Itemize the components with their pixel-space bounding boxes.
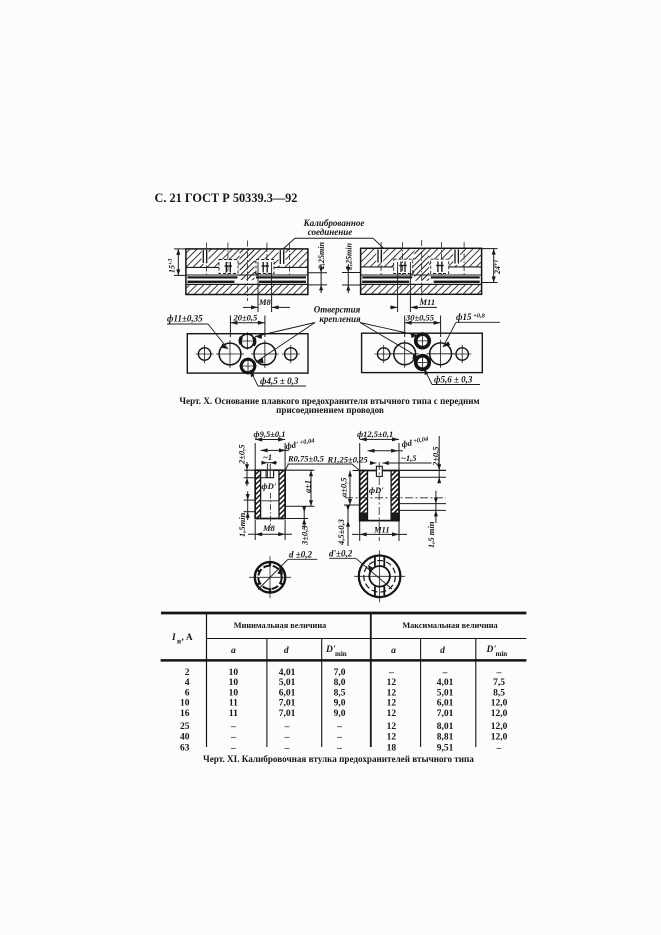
svg-text:10: 10 bbox=[180, 699, 190, 709]
svg-text:1,5min: 1,5min bbox=[237, 512, 247, 537]
svg-text:–: – bbox=[496, 668, 502, 678]
svg-text:12,0: 12,0 bbox=[491, 699, 508, 709]
svg-text:ф4,5 ± 0,3: ф4,5 ± 0,3 bbox=[260, 376, 299, 386]
svg-text:10: 10 bbox=[229, 688, 239, 698]
svg-text:фd +0,04: фd +0,04 bbox=[401, 435, 430, 449]
svg-text:6,01: 6,01 bbox=[437, 699, 454, 709]
svg-text:40: 40 bbox=[180, 733, 190, 743]
svg-text:5,01: 5,01 bbox=[437, 688, 454, 698]
svg-text:М8: М8 bbox=[262, 523, 276, 533]
svg-text:12: 12 bbox=[387, 722, 397, 732]
svg-text:Минимальная величина: Минимальная величина bbox=[234, 621, 327, 630]
svg-text:20±0,5: 20±0,5 bbox=[233, 313, 259, 323]
svg-text:8,01: 8,01 bbox=[437, 722, 454, 732]
svg-text:11: 11 bbox=[229, 699, 238, 709]
svg-text:ф11±0,35: ф11±0,35 bbox=[167, 314, 203, 324]
svg-text:15+3: 15+3 bbox=[168, 259, 177, 273]
svg-text:–: – bbox=[336, 744, 342, 754]
svg-text:2,25min: 2,25min bbox=[345, 243, 354, 271]
svg-text:8,5: 8,5 bbox=[334, 688, 346, 698]
svg-text:М8: М8 bbox=[258, 297, 272, 307]
svg-text:24+1: 24+1 bbox=[493, 260, 502, 275]
svg-text:min: min bbox=[496, 650, 508, 658]
svg-text:–: – bbox=[230, 722, 236, 732]
svg-text:н: н bbox=[177, 638, 181, 646]
svg-text:d ±0,2: d ±0,2 bbox=[289, 550, 312, 560]
svg-text:9,51: 9,51 bbox=[437, 744, 454, 754]
svg-text:12: 12 bbox=[387, 678, 397, 688]
svg-text:63: 63 bbox=[180, 744, 190, 754]
svg-text:соединение: соединение bbox=[308, 227, 353, 237]
svg-text:16: 16 bbox=[180, 709, 190, 719]
svg-text:a: a bbox=[231, 646, 236, 656]
svg-text:I: I bbox=[171, 633, 176, 643]
svg-text:–: – bbox=[496, 744, 502, 754]
svg-text:–: – bbox=[284, 733, 290, 743]
svg-text:ф15 +0,8: ф15 +0,8 bbox=[456, 312, 486, 322]
svg-text:–: – bbox=[388, 668, 394, 678]
svg-text:4,01: 4,01 bbox=[279, 668, 296, 678]
svg-text:ф5,6 ± 0,3: ф5,6 ± 0,3 bbox=[434, 375, 473, 385]
svg-text:–: – bbox=[336, 722, 342, 732]
svg-text:–: – bbox=[336, 733, 342, 743]
svg-text:d: d bbox=[284, 646, 289, 656]
svg-text:7,01: 7,01 bbox=[279, 709, 296, 719]
svg-text:12: 12 bbox=[387, 733, 397, 743]
svg-text:1,5 min: 1,5 min bbox=[426, 521, 436, 548]
svg-text:–: – bbox=[230, 744, 236, 754]
svg-text:12,0: 12,0 bbox=[491, 722, 508, 732]
svg-text:25: 25 bbox=[180, 722, 190, 732]
svg-text:2,25min: 2,25min bbox=[317, 242, 326, 270]
svg-text:–: – bbox=[284, 744, 290, 754]
svg-text:12: 12 bbox=[387, 709, 397, 719]
svg-text:Максимальная величина: Максимальная величина bbox=[402, 621, 498, 630]
svg-text:7,0: 7,0 bbox=[334, 668, 346, 678]
svg-text:7,5: 7,5 bbox=[493, 678, 505, 688]
svg-text:фD': фD' bbox=[369, 485, 384, 495]
svg-text:12: 12 bbox=[387, 688, 397, 698]
svg-text:фD': фD' bbox=[262, 481, 277, 491]
svg-text:~1,5: ~1,5 bbox=[401, 453, 417, 463]
svg-text:R1,25±0,25: R1,25±0,25 bbox=[327, 455, 369, 465]
svg-text:d: d bbox=[440, 646, 445, 656]
svg-text:7,01: 7,01 bbox=[437, 709, 454, 719]
svg-text:12,0: 12,0 bbox=[491, 709, 508, 719]
svg-text:11: 11 bbox=[229, 709, 238, 719]
svg-text:крепления: крепления bbox=[319, 314, 361, 324]
svg-text:a±0,5: a±0,5 bbox=[339, 477, 349, 497]
svg-text:фd' +0,04: фd' +0,04 bbox=[285, 437, 316, 451]
svg-text:Черт. XI. Калибровочная втулк: Черт. XI. Калибровочная втулка предохран… bbox=[203, 754, 474, 764]
svg-text:a: a bbox=[391, 646, 396, 656]
svg-text:12,0: 12,0 bbox=[491, 733, 508, 743]
svg-text:6,01: 6,01 bbox=[279, 688, 296, 698]
svg-text:2: 2 bbox=[185, 668, 190, 678]
svg-text:–: – bbox=[442, 668, 448, 678]
svg-text:–: – bbox=[284, 722, 290, 732]
svg-text:4,01: 4,01 bbox=[437, 678, 454, 688]
svg-text:18: 18 bbox=[387, 744, 397, 754]
svg-text:4,5±0,3: 4,5±0,3 bbox=[336, 518, 346, 546]
svg-text:10: 10 bbox=[229, 678, 239, 688]
svg-text:d'±0,2: d'±0,2 bbox=[329, 549, 353, 559]
svg-text:8,0: 8,0 bbox=[334, 678, 346, 688]
svg-text:–: – bbox=[230, 733, 236, 743]
svg-text:4: 4 bbox=[185, 678, 190, 688]
svg-text:8,81: 8,81 bbox=[437, 733, 454, 743]
svg-text:М11: М11 bbox=[373, 525, 390, 535]
svg-text:10: 10 bbox=[229, 668, 239, 678]
svg-text:ф9,5±0,1: ф9,5±0,1 bbox=[254, 429, 286, 439]
svg-text:5,01: 5,01 bbox=[279, 678, 296, 688]
svg-text:ф12,5±0,1: ф12,5±0,1 bbox=[357, 429, 393, 439]
svg-text:9,0: 9,0 bbox=[334, 709, 346, 719]
svg-text:6: 6 bbox=[185, 688, 190, 698]
svg-text:Отверстия: Отверстия bbox=[314, 305, 361, 315]
svg-text:присоединением проводов: присоединением проводов bbox=[276, 405, 384, 415]
svg-text:R0,75±0,5: R0,75±0,5 bbox=[287, 454, 325, 464]
svg-text:min: min bbox=[335, 650, 347, 658]
svg-text:9,0: 9,0 bbox=[334, 699, 346, 709]
svg-text:8,5: 8,5 bbox=[493, 688, 505, 698]
svg-text:, А: , А bbox=[182, 632, 194, 642]
svg-text:М11: М11 bbox=[419, 297, 436, 307]
svg-text:2±0,5: 2±0,5 bbox=[237, 444, 247, 465]
svg-text:~1: ~1 bbox=[263, 452, 272, 462]
svg-text:С. 21 ГОСТ Р 50339.3—92: С. 21 ГОСТ Р 50339.3—92 bbox=[155, 191, 298, 205]
svg-text:7,01: 7,01 bbox=[279, 699, 296, 709]
svg-text:30±0,55: 30±0,55 bbox=[405, 313, 435, 323]
svg-text:12: 12 bbox=[387, 699, 397, 709]
